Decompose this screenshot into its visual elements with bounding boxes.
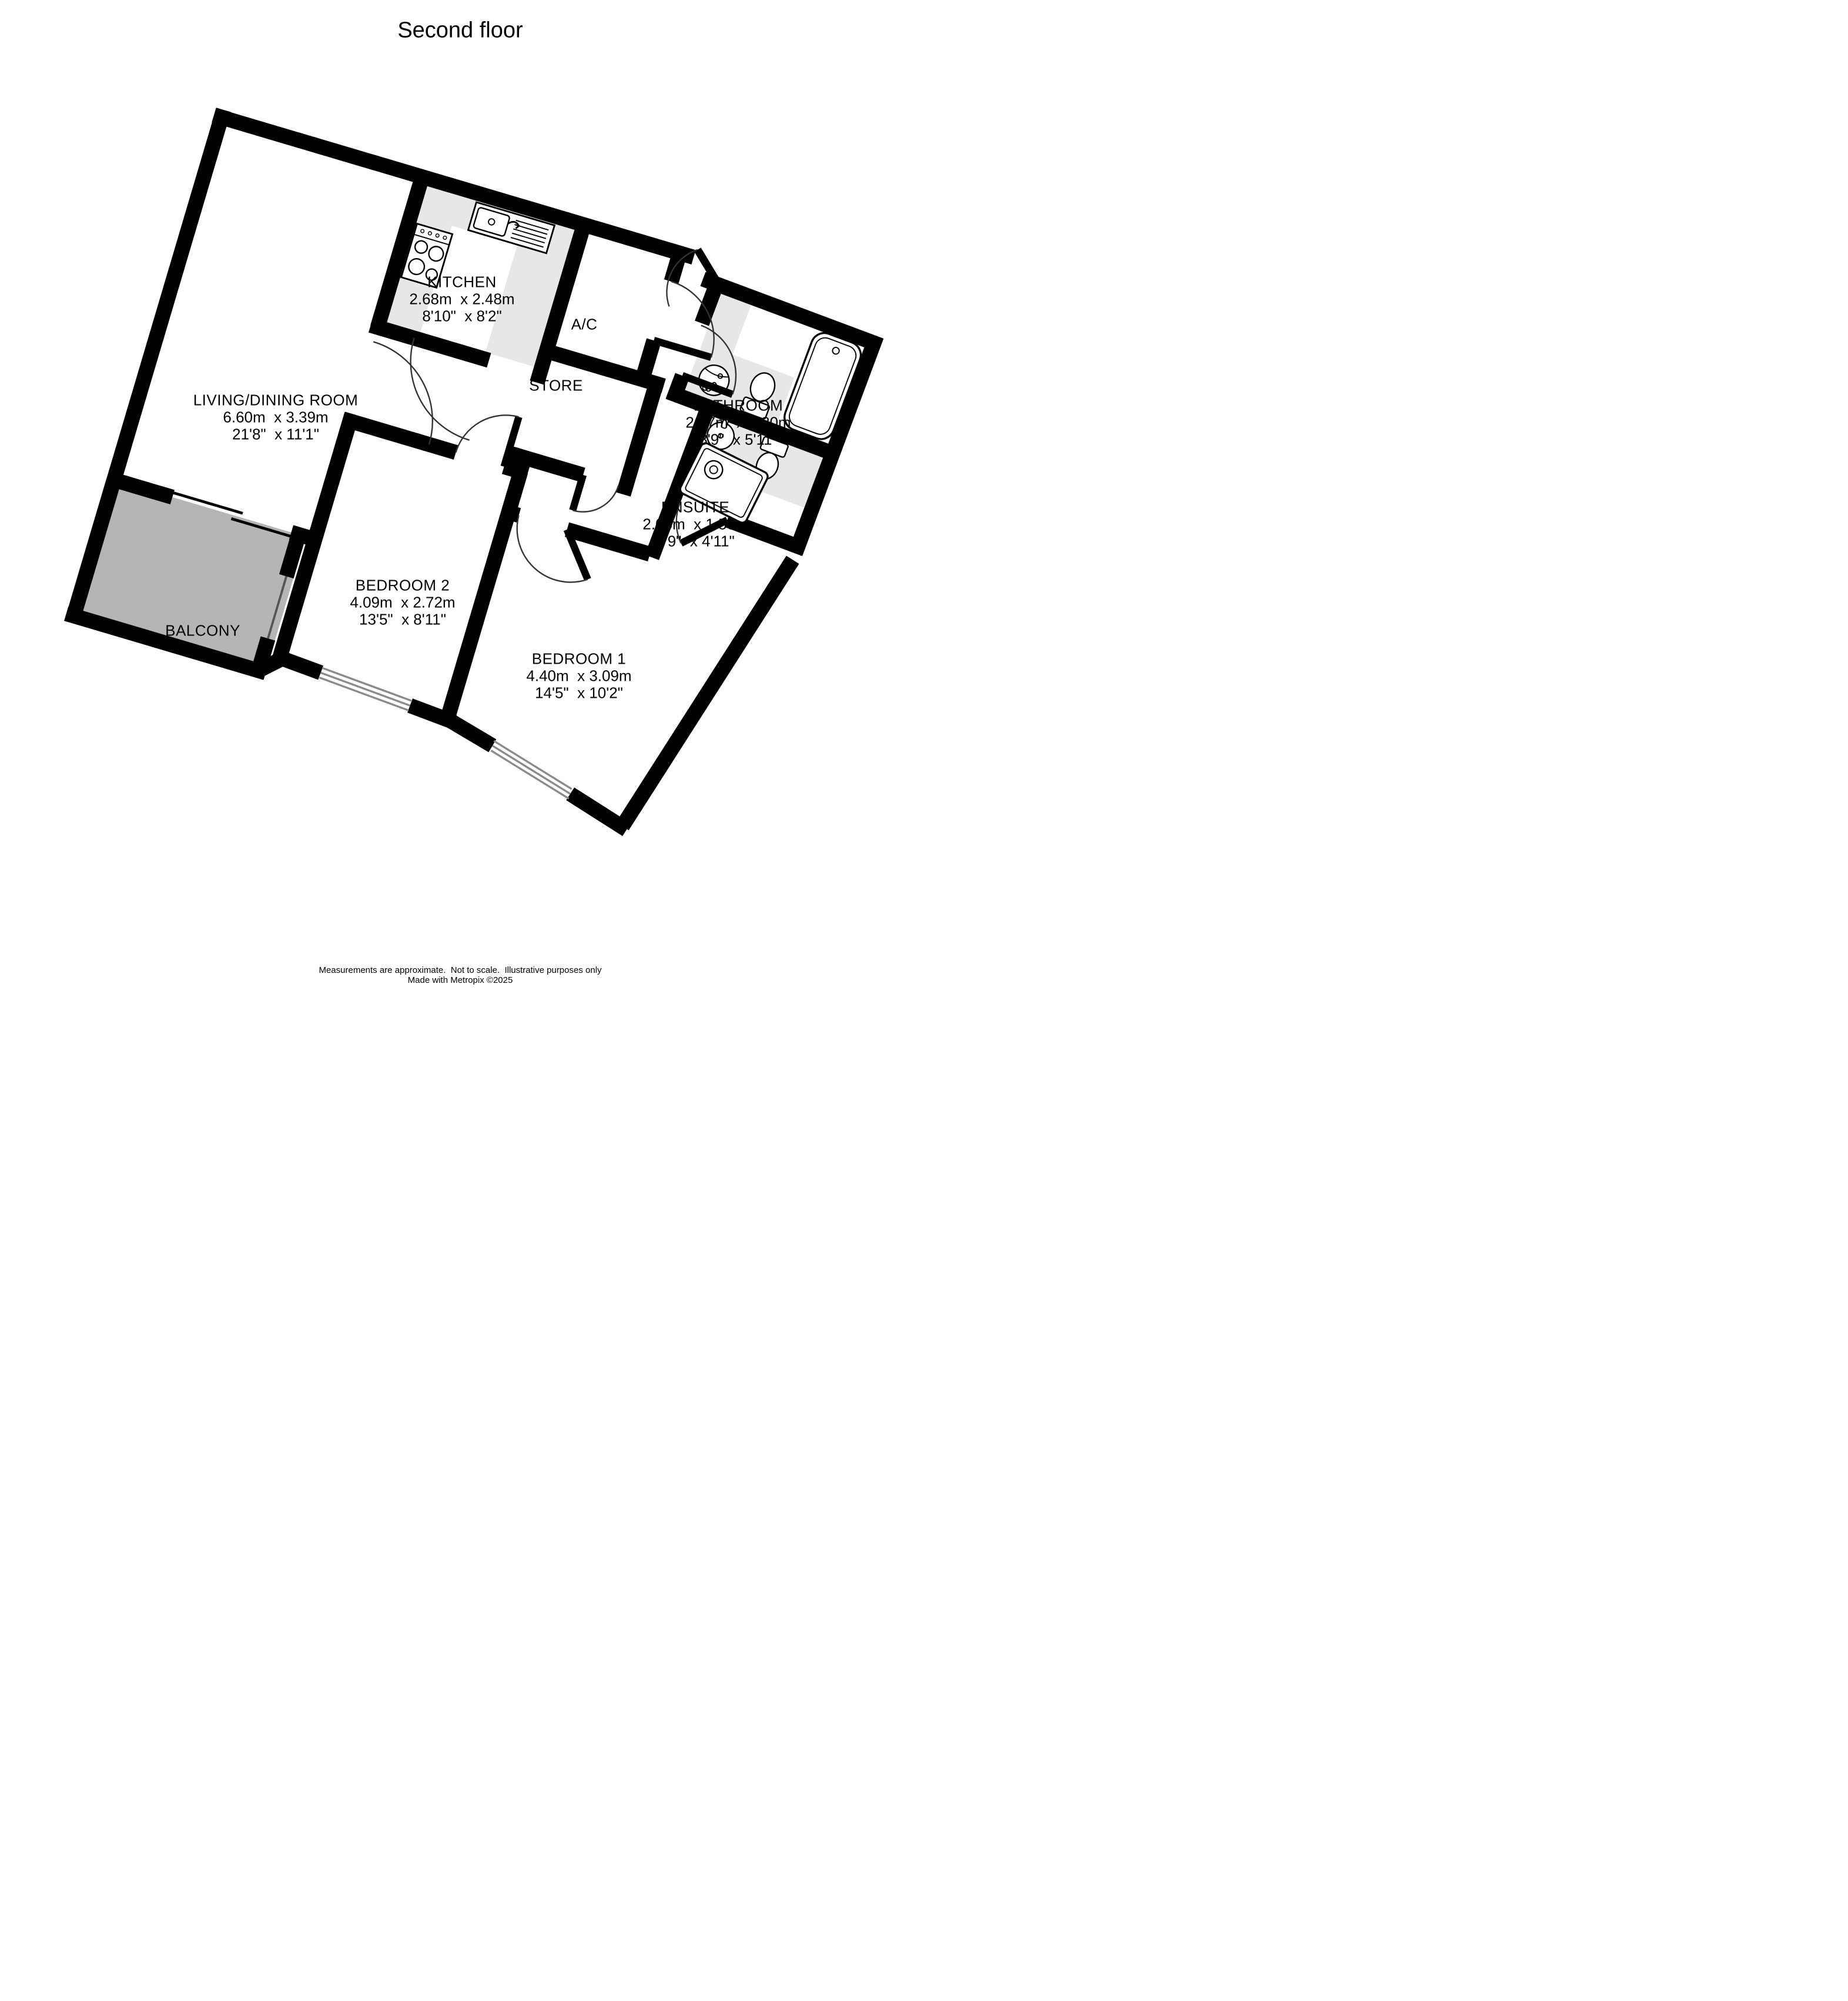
room-dims-metric: 4.09m x 2.72m (350, 594, 455, 611)
room-label-ac: A/C (571, 316, 598, 333)
room-label-balcony: BALCONY (165, 623, 240, 640)
room-name: STORE (529, 377, 583, 394)
floorplan-page: Second floor LIVING/DINING ROOM 6.60m x … (0, 0, 924, 1000)
room-dims-metric: 2.67m x 1.80m (685, 414, 791, 431)
disclaimer-footer: Measurements are approximate. Not to sca… (319, 965, 601, 985)
floorplan-rotated-group (53, 107, 893, 860)
page-title: Second floor (397, 18, 523, 43)
room-dims-imperial: 14'5" x 10'2" (526, 685, 631, 702)
store-door (573, 475, 618, 521)
room-dims-imperial: 13'5" x 8'11" (350, 611, 455, 628)
room-label-bathroom: BATHROOM 2.67m x 1.80m 8'9" x 5'11" (685, 397, 791, 449)
room-dims-imperial: 6'9" x 4'11" (642, 533, 748, 550)
room-dims-imperial: 8'10" x 8'2" (409, 308, 514, 325)
room-dims-metric: 4.40m x 3.09m (526, 668, 631, 685)
room-name: BEDROOM 2 (350, 577, 455, 594)
room-name: A/C (571, 316, 598, 333)
room-dims-metric: 6.60m x 3.39m (193, 409, 359, 426)
room-dims-imperial: 8'9" x 5'11" (685, 431, 791, 449)
room-label-ensuite: ENSUITE 2.06m x 1.50m 6'9" x 4'11" (642, 499, 748, 550)
room-name: BEDROOM 1 (526, 651, 631, 668)
room-label-bedroom2: BEDROOM 2 4.09m x 2.72m 13'5" x 8'11" (350, 577, 455, 628)
disclaimer-line: Measurements are approximate. Not to sca… (319, 965, 601, 975)
room-name: LIVING/DINING ROOM (193, 392, 359, 409)
room-dims-imperial: 21'8" x 11'1" (193, 426, 359, 443)
credit-line: Made with Metropix ©2025 (319, 975, 601, 985)
room-dims-metric: 2.68m x 2.48m (409, 291, 514, 308)
bedroom2-door (456, 403, 519, 467)
room-name: ENSUITE (642, 499, 748, 516)
window-bedroom2 (317, 668, 413, 710)
room-label-store: STORE (529, 377, 583, 394)
room-dims-metric: 2.06m x 1.50m (642, 516, 748, 533)
room-label-bedroom1: BEDROOM 1 4.40m x 3.09m 14'5" x 10'2" (526, 651, 631, 702)
room-name: BALCONY (165, 623, 240, 640)
bedroom1-door (504, 516, 600, 589)
room-label-kitchen: KITCHEN 2.68m x 2.48m 8'10" x 8'2" (409, 274, 514, 325)
window-bedroom1 (484, 741, 578, 798)
room-label-living: LIVING/DINING ROOM 6.60m x 3.39m 21'8" x… (193, 392, 359, 443)
floorplan-canvas (0, 0, 924, 1000)
room-name: BATHROOM (685, 397, 791, 414)
room-name: KITCHEN (409, 274, 514, 291)
